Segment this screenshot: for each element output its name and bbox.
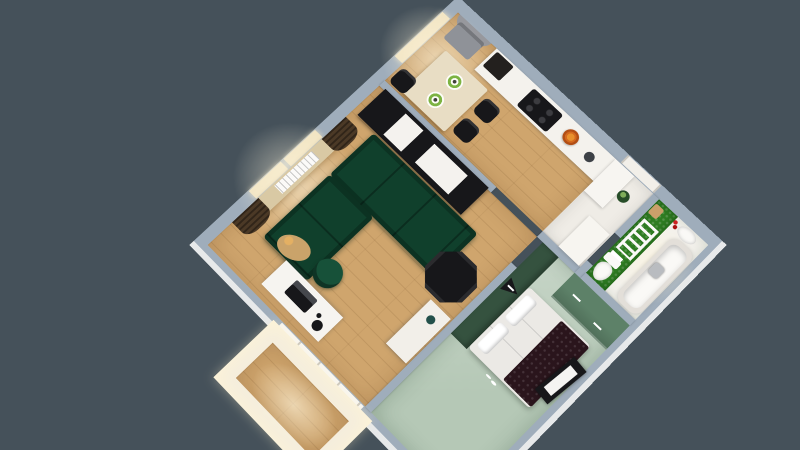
scene-background <box>0 0 800 450</box>
apartment-floorplan <box>189 0 726 450</box>
